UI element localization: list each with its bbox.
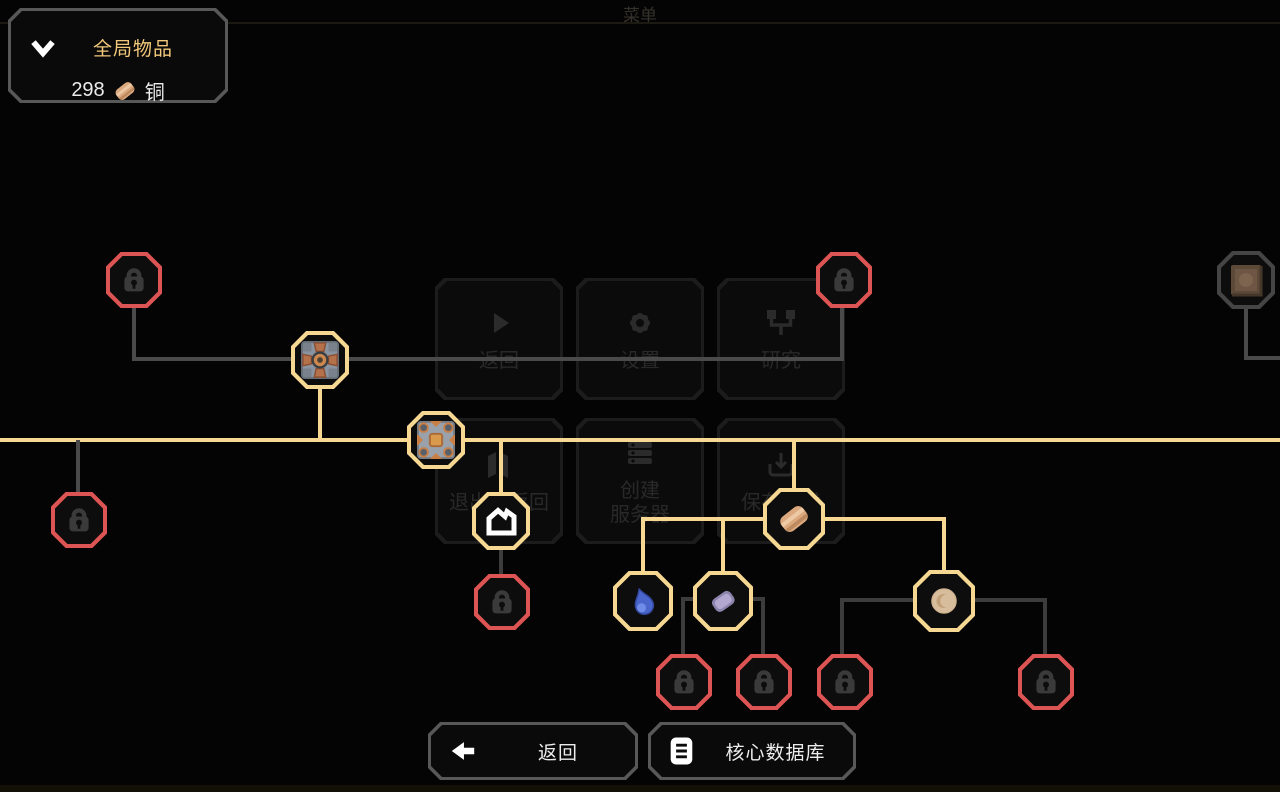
- menu-button-label: 设置: [620, 349, 660, 373]
- tree-line: [641, 517, 645, 575]
- tree-line-locked: [132, 304, 136, 359]
- menu-button-back: 返回: [435, 278, 563, 400]
- tech-node-conveyor[interactable]: [407, 411, 465, 469]
- tree-line: [641, 517, 773, 521]
- tree-line-locked: [1043, 598, 1047, 657]
- tech-node-locked-1[interactable]: [106, 252, 162, 308]
- copper-icon: [775, 500, 813, 538]
- tech-node-locked-5[interactable]: [656, 654, 712, 710]
- lock-icon: [831, 668, 859, 696]
- lock-icon: [1032, 668, 1060, 696]
- sand-icon: [928, 585, 960, 617]
- arrow-left-icon: [448, 737, 478, 765]
- tech-node-locked-6[interactable]: [736, 654, 792, 710]
- menu-button-label: 返回: [479, 349, 519, 373]
- item-row-copper: 298 铜: [8, 76, 228, 105]
- tech-node-locked-2[interactable]: [816, 252, 872, 308]
- tree-line: [942, 517, 946, 574]
- lock-icon: [65, 506, 93, 534]
- tech-node-scrap-block[interactable]: [1217, 251, 1275, 309]
- mechanical-drill-icon: [301, 341, 339, 379]
- lock-icon: [750, 668, 778, 696]
- tech-node-mechanical-drill[interactable]: [291, 331, 349, 389]
- menu-button-host-server: 创建 服务器: [576, 418, 704, 544]
- tree-line-locked: [761, 597, 765, 657]
- tech-node-sand[interactable]: [913, 570, 975, 632]
- global-items-panel[interactable]: 全局物品 298 铜: [8, 8, 228, 103]
- tree-line-locked: [1244, 356, 1280, 360]
- tree-line: [318, 386, 322, 440]
- tree-line: [815, 517, 946, 521]
- tech-node-locked-7[interactable]: [817, 654, 873, 710]
- terrain-core-icon: [481, 501, 521, 541]
- tech-node-lead[interactable]: [693, 571, 753, 631]
- core-database-button[interactable]: 核心数据库: [648, 722, 856, 780]
- tech-node-locked-3[interactable]: [51, 492, 107, 548]
- water-icon: [626, 584, 660, 618]
- core-database-button-label: 核心数据库: [695, 738, 856, 765]
- lock-icon: [120, 266, 148, 294]
- tree-line: [792, 440, 796, 490]
- research-tree-screen: 菜单 返回 设置: [0, 0, 1280, 792]
- tech-node-water[interactable]: [613, 571, 673, 631]
- chevron-down-icon[interactable]: [28, 37, 58, 59]
- tree-line-locked: [499, 548, 503, 578]
- item-name: 铜: [145, 76, 165, 105]
- lock-icon: [488, 588, 516, 616]
- back-button-label: 返回: [478, 738, 638, 765]
- gear-icon: [622, 305, 658, 341]
- global-items-title: 全局物品: [58, 34, 208, 61]
- tech-node-copper[interactable]: [763, 488, 825, 550]
- research-icon: [763, 305, 799, 341]
- play-icon: [481, 305, 517, 341]
- tree-line-locked: [840, 598, 844, 657]
- tree-line-locked: [132, 357, 844, 361]
- lock-icon: [670, 668, 698, 696]
- tree-line: [499, 440, 503, 494]
- tree-line: [721, 517, 725, 575]
- tree-line-locked: [840, 304, 844, 359]
- tech-node-locked-8[interactable]: [1018, 654, 1074, 710]
- scrap-block-icon: [1228, 262, 1264, 298]
- lead-icon: [706, 584, 740, 618]
- copper-icon: [112, 78, 138, 104]
- item-count: 298: [71, 79, 104, 102]
- tech-node-core-shard[interactable]: [472, 492, 530, 550]
- tree-line-locked: [1244, 306, 1248, 360]
- conveyor-icon: [417, 421, 455, 459]
- menu-button-settings: 设置: [576, 278, 704, 400]
- menu-button-label: 研究: [761, 349, 801, 373]
- tech-node-locked-4[interactable]: [474, 574, 530, 630]
- tree-line-main: [0, 438, 1280, 442]
- tree-line-locked: [76, 440, 80, 494]
- tree-line-locked: [681, 597, 685, 657]
- back-button[interactable]: 返回: [428, 722, 638, 780]
- book-icon: [668, 736, 695, 766]
- lock-icon: [830, 266, 858, 294]
- bottom-strip: [0, 785, 1280, 792]
